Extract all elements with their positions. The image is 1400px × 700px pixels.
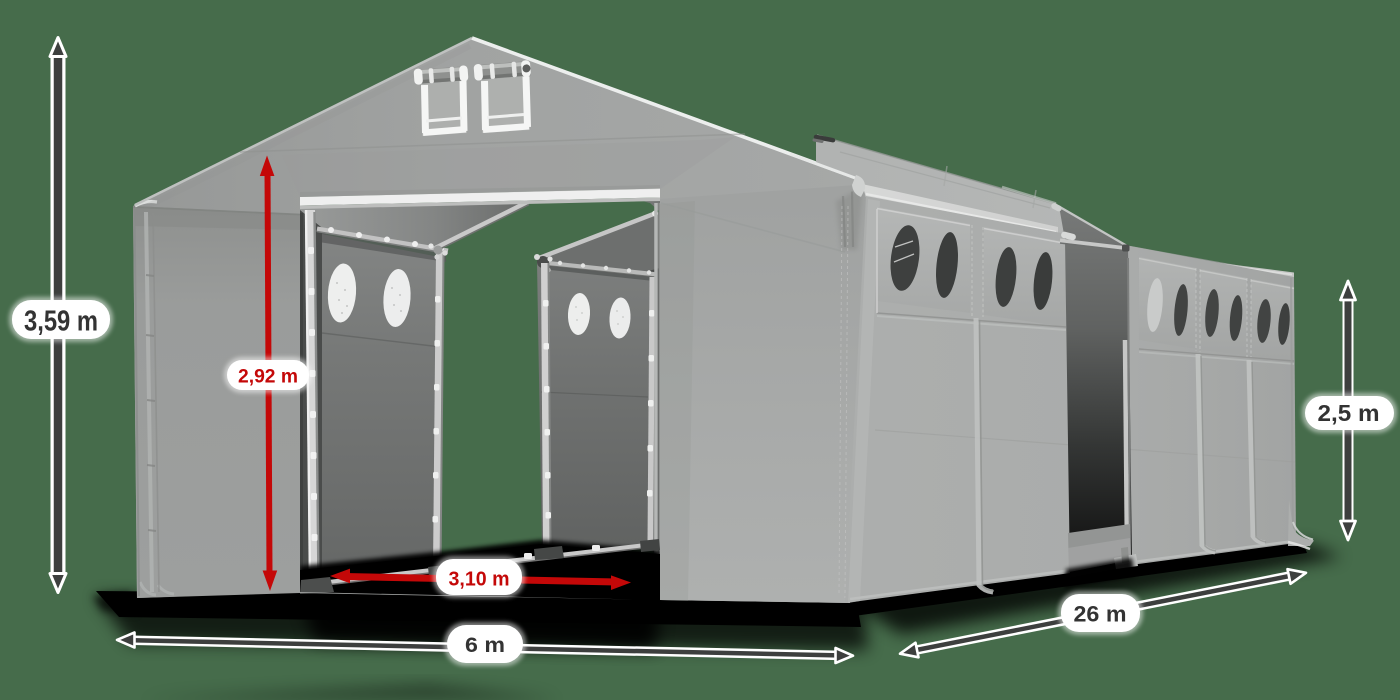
svg-text:3,59 m: 3,59 m: [24, 306, 98, 338]
svg-text:26 m: 26 m: [1074, 602, 1127, 627]
svg-text:3,10 m: 3,10 m: [449, 569, 510, 591]
svg-text:2,92 m: 2,92 m: [238, 366, 298, 388]
svg-text:6 m: 6 m: [465, 634, 505, 657]
svg-text:2,5 m: 2,5 m: [1318, 400, 1380, 426]
